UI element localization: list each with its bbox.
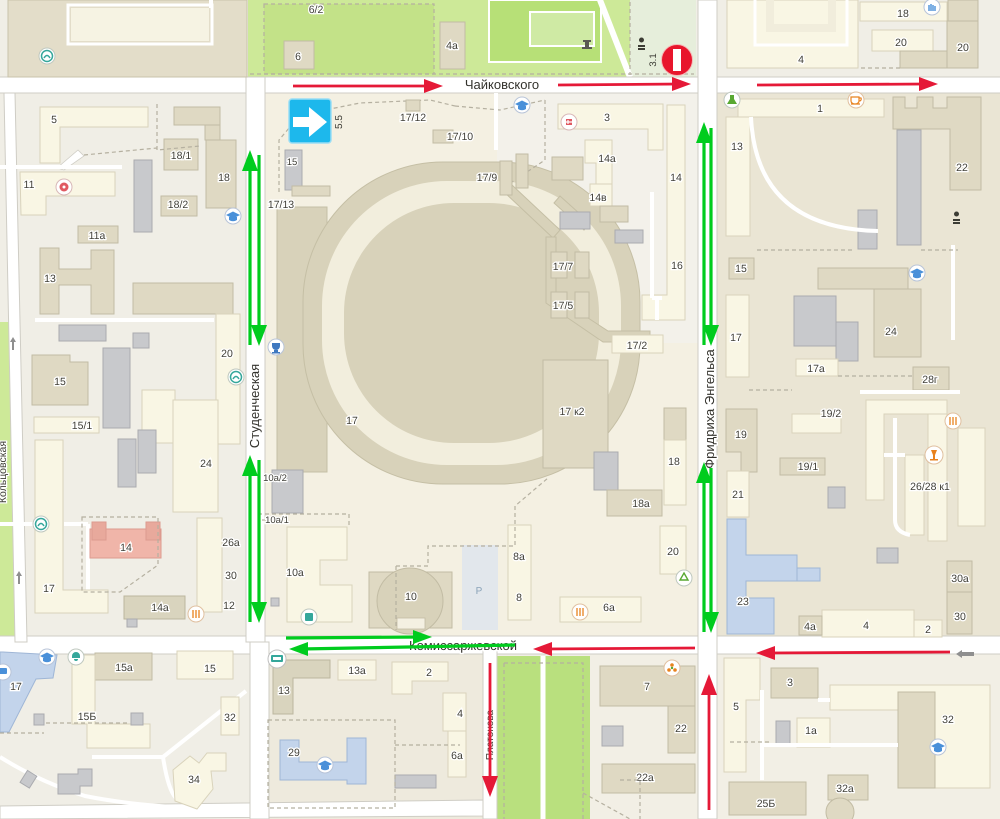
svg-text:20: 20 — [895, 37, 907, 49]
svg-text:24: 24 — [200, 458, 212, 470]
svg-text:2: 2 — [925, 624, 931, 636]
svg-text:13: 13 — [44, 273, 56, 285]
svg-text:11а: 11а — [89, 230, 106, 242]
svg-text:18а: 18а — [632, 498, 650, 510]
svg-text:13: 13 — [278, 685, 290, 697]
svg-text:19: 19 — [735, 429, 747, 441]
svg-text:4: 4 — [863, 620, 869, 632]
svg-text:26а: 26а — [222, 537, 240, 549]
svg-text:1: 1 — [817, 103, 823, 115]
svg-text:Чайковского: Чайковского — [465, 77, 539, 92]
svg-text:16: 16 — [671, 260, 683, 272]
svg-text:6а: 6а — [451, 750, 463, 762]
svg-text:10: 10 — [405, 591, 417, 603]
svg-text:32: 32 — [224, 712, 236, 724]
svg-text:13: 13 — [731, 141, 743, 153]
svg-text:1а: 1а — [805, 725, 817, 737]
svg-text:20: 20 — [957, 42, 969, 54]
svg-text:12: 12 — [223, 600, 235, 612]
svg-text:6а: 6а — [603, 602, 615, 614]
svg-text:4: 4 — [457, 708, 463, 720]
svg-text:22а: 22а — [636, 772, 654, 784]
svg-text:28г: 28г — [922, 374, 938, 386]
svg-text:15а: 15а — [115, 662, 133, 674]
svg-text:8: 8 — [516, 592, 522, 604]
svg-text:25Б: 25Б — [757, 798, 776, 810]
svg-text:10а/2: 10а/2 — [263, 473, 287, 484]
svg-text:30а: 30а — [951, 573, 969, 585]
svg-text:11: 11 — [24, 179, 35, 191]
svg-text:15Б: 15Б — [78, 711, 97, 723]
svg-text:4а: 4а — [804, 621, 816, 633]
svg-text:6/2: 6/2 — [309, 4, 324, 16]
svg-text:22: 22 — [956, 162, 968, 174]
svg-text:30: 30 — [225, 570, 237, 582]
svg-text:3: 3 — [604, 112, 610, 124]
svg-text:Студенческая: Студенческая — [247, 364, 262, 448]
svg-text:23: 23 — [737, 596, 749, 608]
svg-text:17: 17 — [10, 681, 22, 693]
svg-text:15: 15 — [735, 263, 747, 275]
svg-text:17: 17 — [346, 415, 358, 427]
svg-text:4а: 4а — [446, 40, 458, 52]
svg-text:20: 20 — [221, 348, 233, 360]
svg-text:14: 14 — [120, 542, 132, 554]
svg-text:Фридриха Энгельса: Фридриха Энгельса — [702, 348, 717, 468]
svg-text:18: 18 — [668, 456, 680, 468]
svg-text:3.1: 3.1 — [648, 53, 659, 66]
svg-text:30: 30 — [954, 611, 966, 623]
svg-text:15: 15 — [54, 376, 66, 388]
svg-text:15: 15 — [287, 157, 298, 168]
svg-text:29: 29 — [288, 747, 300, 759]
svg-text:14а: 14а — [598, 153, 616, 165]
svg-text:6: 6 — [295, 51, 301, 63]
svg-text:17/9: 17/9 — [477, 172, 498, 184]
svg-text:32а: 32а — [836, 783, 854, 795]
svg-text:18: 18 — [218, 172, 230, 184]
svg-text:15: 15 — [204, 663, 216, 675]
svg-text:2: 2 — [426, 667, 432, 679]
svg-text:15/1: 15/1 — [72, 420, 93, 432]
svg-text:5: 5 — [51, 114, 57, 126]
svg-text:20: 20 — [667, 546, 679, 558]
svg-text:10а/1: 10а/1 — [265, 515, 289, 526]
svg-text:19/1: 19/1 — [798, 461, 819, 473]
svg-text:18/2: 18/2 — [168, 199, 189, 211]
svg-text:17/5: 17/5 — [553, 300, 574, 312]
svg-text:24: 24 — [885, 326, 897, 338]
svg-text:14в: 14в — [589, 192, 607, 204]
svg-text:8а: 8а — [513, 551, 525, 563]
svg-text:10а: 10а — [286, 567, 304, 579]
svg-text:Кольцовская: Кольцовская — [0, 441, 9, 503]
svg-text:13а: 13а — [348, 665, 366, 677]
svg-text:5.5: 5.5 — [334, 115, 345, 129]
svg-text:17: 17 — [730, 332, 742, 344]
svg-text:17 к2: 17 к2 — [559, 406, 584, 418]
svg-text:17/7: 17/7 — [553, 261, 574, 273]
svg-text:3: 3 — [787, 677, 793, 689]
svg-text:17/13: 17/13 — [268, 199, 294, 211]
svg-text:17/2: 17/2 — [627, 340, 648, 352]
svg-text:17/10: 17/10 — [447, 131, 473, 143]
svg-text:14: 14 — [670, 172, 682, 184]
svg-text:17а: 17а — [807, 363, 825, 375]
svg-text:7: 7 — [644, 681, 650, 693]
svg-text:32: 32 — [942, 714, 954, 726]
svg-text:17: 17 — [43, 583, 55, 595]
svg-text:22: 22 — [675, 723, 687, 735]
svg-text:17/12: 17/12 — [400, 112, 426, 124]
svg-text:5: 5 — [733, 701, 739, 713]
svg-text:Р: Р — [476, 586, 483, 597]
svg-text:18: 18 — [897, 8, 909, 20]
svg-text:18/1: 18/1 — [171, 150, 192, 162]
svg-text:4: 4 — [798, 54, 804, 66]
svg-text:19/2: 19/2 — [821, 408, 842, 420]
svg-text:34: 34 — [188, 774, 200, 786]
svg-text:14а: 14а — [151, 602, 169, 614]
svg-text:26/28 к1: 26/28 к1 — [910, 481, 950, 493]
svg-text:21: 21 — [732, 489, 744, 501]
